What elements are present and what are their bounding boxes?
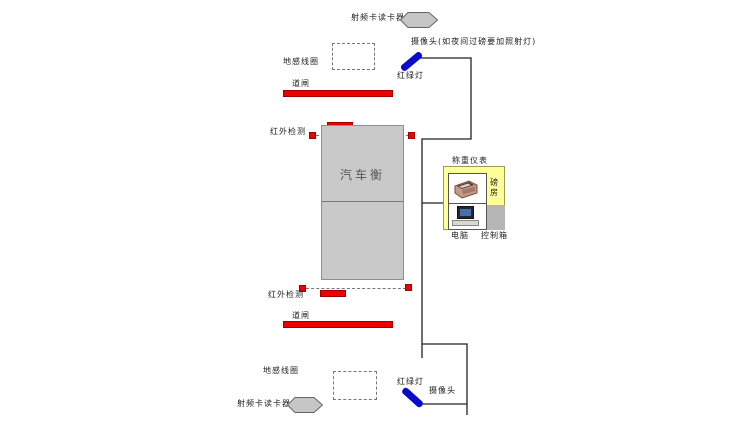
rfid-reader-bottom-label: 射频卡读卡器	[237, 399, 291, 408]
barrier-bottom-label: 道闸	[292, 311, 310, 320]
weigh-room-label: 磅房	[489, 178, 499, 198]
computer-monitor	[457, 206, 474, 219]
rfid-reader-top-icon	[400, 12, 438, 28]
wire-bottom-branch	[422, 344, 467, 415]
barrier-top-bar	[283, 90, 393, 97]
traffic-light-bottom-icon	[401, 387, 424, 409]
truck-scale-platform: 汽车衡	[321, 125, 404, 280]
computer-screen	[460, 209, 471, 216]
truck-scale-system-diagram: 射频卡读卡器 摄像头(如夜间过磅要加照射灯) 地感线圈 红绿灯 道闸 红外检测 …	[0, 0, 746, 428]
control-box-label: 控制箱	[481, 231, 508, 240]
scale-bottom-sensor-bar	[320, 290, 346, 297]
camera-bottom-label: 摄像头	[429, 386, 456, 395]
ground-coil-bottom	[333, 371, 377, 400]
indicator-label: 称重仪表	[452, 156, 488, 165]
traffic-light-bottom-label: 红绿灯	[397, 377, 424, 386]
computer-label: 电脑	[451, 231, 469, 240]
infrared-top-right-sensor	[408, 132, 415, 139]
barrier-bottom-bar	[283, 321, 393, 328]
rfid-reader-top-label: 射频卡读卡器	[351, 13, 405, 22]
ground-coil-top-label: 地感线圈	[283, 57, 319, 66]
infrared-top-label: 红外检测	[270, 127, 306, 136]
rfid-reader-bottom-icon	[287, 397, 323, 413]
traffic-light-top-label: 红绿灯	[397, 71, 424, 80]
traffic-light-top-icon	[400, 51, 424, 72]
control-box	[487, 205, 505, 230]
camera-top-label: 摄像头(如夜间过磅要加照射灯)	[411, 37, 536, 46]
computer-keyboard	[452, 220, 479, 226]
ground-coil-bottom-label: 地感线圈	[263, 366, 299, 375]
infrared-top-left-sensor	[309, 132, 316, 139]
ground-coil-top	[332, 43, 375, 70]
barrier-top-label: 道闸	[292, 79, 310, 88]
infrared-bottom-beam	[306, 288, 406, 289]
infrared-bottom-label: 红外检测	[268, 290, 304, 299]
scale-section-divider	[322, 201, 403, 202]
weighing-indicator-device	[452, 177, 480, 200]
infrared-bottom-right-sensor	[405, 284, 412, 291]
truck-scale-label: 汽车衡	[322, 166, 403, 183]
